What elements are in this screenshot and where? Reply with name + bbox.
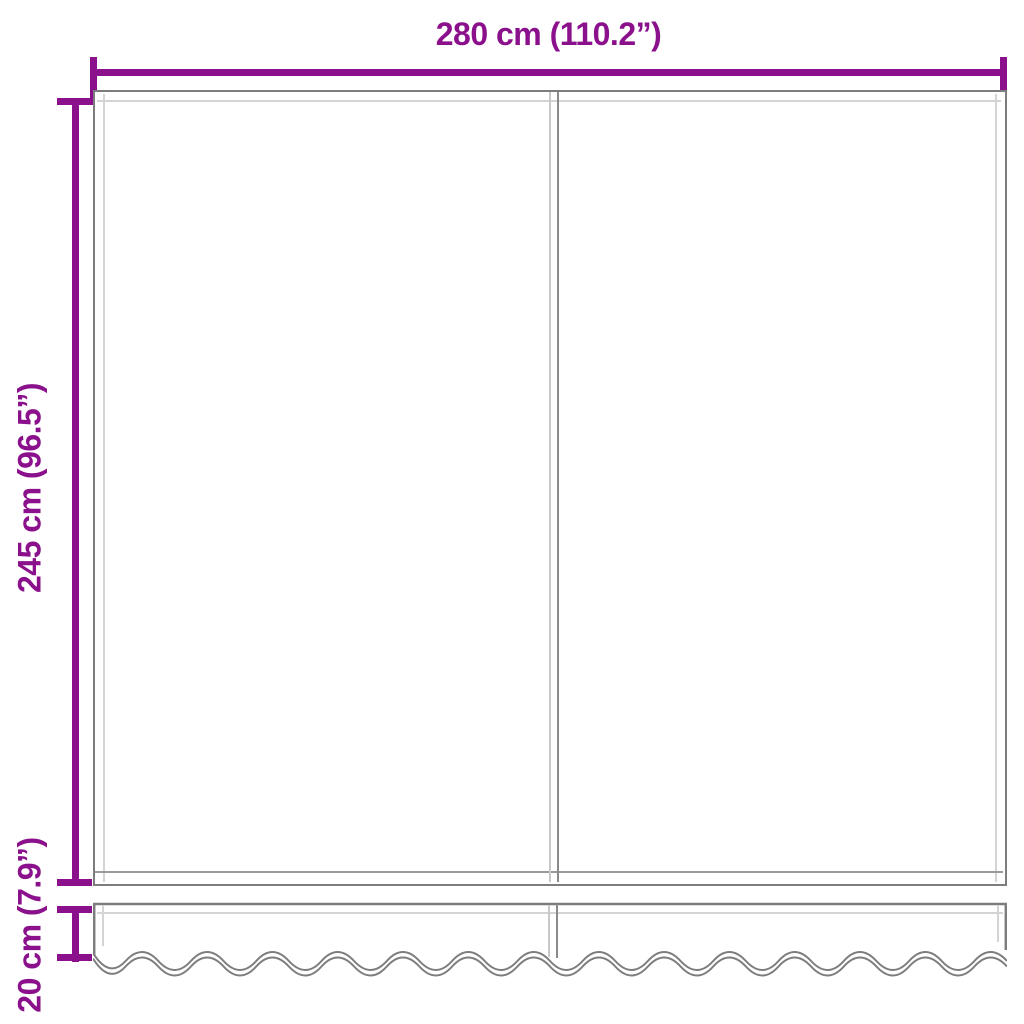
valance-dimension-label: 20 cm (7.9”)	[12, 837, 49, 1012]
panel-center-seam-stitch	[549, 92, 551, 882]
width-dimension-line	[93, 69, 1004, 76]
dimension-diagram: 280 cm (110.2”) 245 cm (96.5”) 20 cm (7.…	[0, 0, 1024, 1024]
height-dimension-tick-bottom	[57, 879, 92, 886]
valance-graphic	[93, 900, 1007, 988]
valance-dimension-tick-top	[57, 906, 92, 913]
valance-dimension-tick-bottom	[57, 954, 92, 961]
height-dimension-label: 245 cm (96.5”)	[12, 383, 49, 593]
panel-center-seam	[557, 92, 559, 882]
height-dimension-tick-top	[57, 98, 92, 105]
fabric-panel	[93, 90, 1007, 886]
width-dimension-label: 280 cm (110.2”)	[93, 16, 1004, 53]
panel-left-stitch-line	[103, 94, 105, 882]
panel-right-stitch-line	[995, 94, 997, 882]
height-dimension-line	[72, 99, 79, 886]
